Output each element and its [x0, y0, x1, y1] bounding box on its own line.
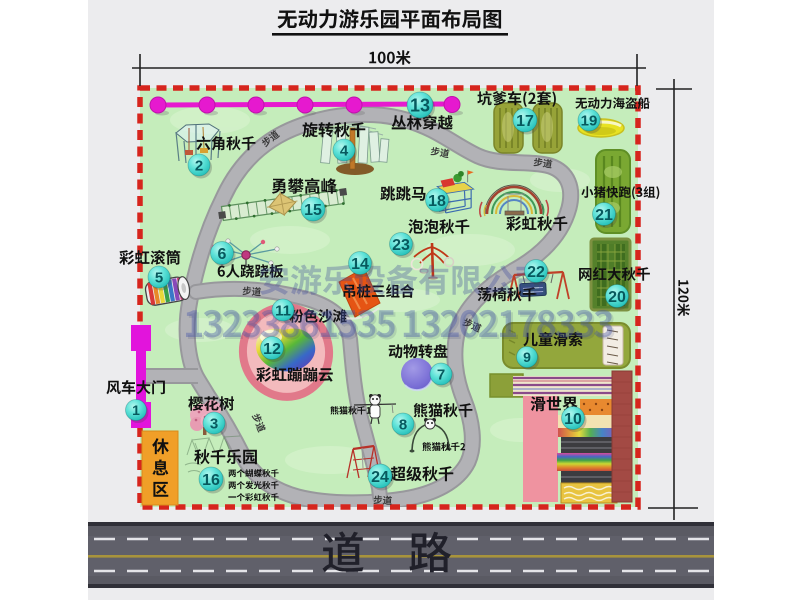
svg-text:10: 10: [564, 411, 582, 428]
svg-text:17: 17: [516, 113, 534, 130]
svg-text:3: 3: [210, 415, 218, 432]
svg-text:8: 8: [399, 416, 407, 433]
svg-text:21: 21: [595, 207, 613, 224]
svg-text:18: 18: [428, 193, 446, 210]
svg-text:13: 13: [410, 95, 430, 115]
svg-text:19: 19: [581, 112, 598, 129]
svg-text:1: 1: [132, 402, 140, 418]
svg-text:14: 14: [351, 256, 369, 273]
svg-text:7: 7: [437, 366, 445, 383]
svg-text:15: 15: [304, 202, 322, 219]
svg-text:9: 9: [523, 349, 531, 365]
svg-text:4: 4: [340, 142, 349, 159]
svg-text:2: 2: [195, 157, 203, 174]
svg-text:22: 22: [527, 264, 545, 281]
svg-text:12: 12: [263, 341, 281, 358]
svg-text:23: 23: [392, 237, 410, 254]
svg-text:5: 5: [155, 269, 163, 286]
svg-text:11: 11: [275, 302, 291, 319]
svg-text:16: 16: [202, 472, 220, 489]
svg-text:24: 24: [371, 469, 389, 486]
svg-text:20: 20: [608, 289, 626, 306]
svg-text:6: 6: [218, 246, 227, 263]
